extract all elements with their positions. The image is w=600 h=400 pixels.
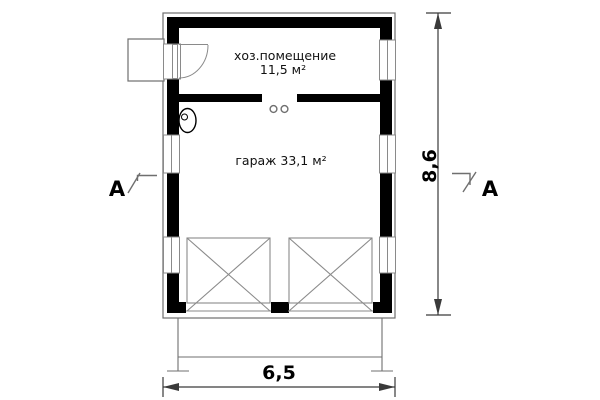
right-wall-segment [380,173,392,237]
floor-plan-page: 6,5 8,6 A A хоз.помещение 11,5 м² гараж … [0,0,600,400]
right-wall-segment [380,80,392,135]
dimension-height-label: 8,6 [419,149,441,183]
bottom-wall-segment [167,302,186,313]
window-right-2 [380,135,396,173]
entry-door-frame [173,45,178,79]
interior-wall-segment [297,94,380,102]
top-wall [167,17,392,28]
interior-wall-segment [179,94,262,102]
room-label-garage: гараж 33,1 м² [235,153,326,168]
right-wall-segment [380,17,392,40]
bottom-wall-pier [271,302,289,313]
entry-porch [128,39,164,81]
window-left-2 [164,237,180,273]
section-letter: A [482,177,499,201]
room-label-utility-name: хоз.помещение [234,48,336,63]
window-left-1 [164,135,180,173]
left-wall-segment [167,173,179,237]
section-letter: A [109,177,126,201]
bottom-wall-segment [373,302,392,313]
window-right-3 [380,237,396,273]
dimension-width-label: 6,5 [262,362,296,384]
left-wall-segment [167,17,179,45]
left-wall-segment [167,79,179,135]
room-label-utility-area: 11,5 м² [260,62,306,77]
sink-fixture [179,109,196,133]
floor-plan-drawing: 6,5 8,6 A A хоз.помещение 11,5 м² гараж … [0,0,600,400]
window-right-1 [380,40,396,80]
